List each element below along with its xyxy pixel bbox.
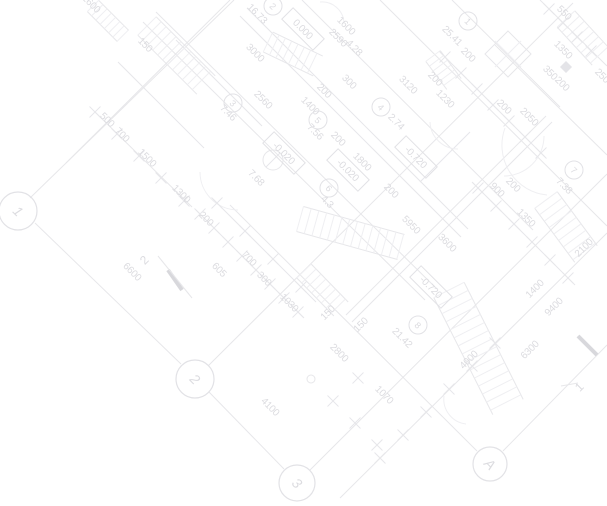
stair-tread <box>374 228 381 253</box>
stair-tread <box>554 217 576 234</box>
dimension-label: 200 <box>381 182 400 201</box>
dimension-label: 1300 <box>169 183 192 206</box>
wall-line <box>503 345 607 451</box>
dimension-label: 200 <box>458 46 477 65</box>
dimension-label: 2560 <box>251 89 274 112</box>
room-stamp: 7 <box>565 161 583 179</box>
stair-tread <box>358 224 365 249</box>
plan-symbols <box>263 31 572 383</box>
dimension-label: 300 <box>254 270 273 289</box>
stair-tread <box>450 314 480 329</box>
dimension-label: 7.56 <box>304 122 325 143</box>
grid-bubble-label: A <box>480 454 498 472</box>
room-stamp: 2 <box>264 0 282 15</box>
stair-tread <box>535 192 557 209</box>
dimension-label: 7.68 <box>245 168 266 189</box>
dimension-labels: 2600150300016.73160025904.2825607.465007… <box>79 0 607 419</box>
dimension-label: 16.73 <box>245 2 270 27</box>
dimension-label: 7.46 <box>217 103 238 124</box>
wall-line <box>118 62 204 148</box>
dimension-label: 1230 <box>433 88 456 111</box>
section-marker: 2 <box>137 253 192 298</box>
elevation-marker: 0.000 <box>282 8 324 50</box>
room-stamp: 8 <box>409 316 427 334</box>
stair-tread <box>389 232 396 257</box>
stair-tread <box>482 379 512 394</box>
grid-bubble-label: 1 <box>10 203 27 220</box>
dimension-label: 200 <box>425 70 444 89</box>
dimension-label: 6300 <box>519 338 542 361</box>
dimension-label: 1400 <box>524 277 547 300</box>
stair-tread <box>540 198 562 215</box>
room-stamp: 4 <box>372 98 390 116</box>
architectural-plan: Architectural floor plan blueprint (rota… <box>0 0 607 506</box>
door-arcs <box>200 2 547 424</box>
grid-bubble: 2 <box>176 360 214 398</box>
dimension-label: 4100 <box>258 396 281 419</box>
dimension-label: 3120 <box>396 74 419 97</box>
stair-edge <box>434 298 493 415</box>
stair-tread <box>549 211 571 228</box>
stair-tread <box>544 205 566 222</box>
stair-tread <box>586 42 604 58</box>
grid-bubble: 3 <box>279 465 315 501</box>
wall-line <box>156 12 437 289</box>
grid-bubbles: 123A <box>0 192 507 501</box>
wall-line <box>30 0 234 198</box>
dimension-label: 700 <box>239 250 258 269</box>
dimension-label: 1500 <box>135 147 158 170</box>
stair-tread <box>307 53 317 73</box>
dimension-label: 550 <box>554 4 573 23</box>
dimension-label: 300 <box>339 73 358 92</box>
dimension-label: 150 <box>319 303 338 322</box>
stair-tread <box>491 395 521 410</box>
dimension-label: 9400 <box>543 295 566 318</box>
dimension-label: 2800 <box>327 342 350 365</box>
stair-tread <box>487 387 517 402</box>
dimension-label: 2.74 <box>385 112 406 133</box>
dimension-label: 250 <box>592 67 607 86</box>
stair-tread <box>297 206 304 231</box>
section-tail-line <box>158 256 192 298</box>
point-marker <box>307 375 315 383</box>
dimension-label: 3000 <box>243 42 266 65</box>
stair-tread <box>350 221 357 246</box>
stair-tread <box>288 44 298 64</box>
room-number: 6 <box>323 183 334 194</box>
wall-line <box>310 174 607 470</box>
room-number: 8 <box>412 320 423 331</box>
stair-tread <box>474 363 504 378</box>
duct-symbol <box>560 61 572 73</box>
section-label: 1 <box>572 380 587 395</box>
dimension-label: 200 <box>503 176 522 195</box>
stair-tread <box>304 209 311 234</box>
stair-tread <box>327 215 334 240</box>
wall-and-grid-lines <box>30 0 607 498</box>
room-number: 1 <box>462 16 473 27</box>
dimension-label: 25.41 <box>440 24 465 49</box>
room-stamp: 6 <box>320 179 338 197</box>
dimension-label: 6600 <box>120 261 143 284</box>
dimension-label: 500 <box>97 111 116 130</box>
stair-tread <box>559 224 581 241</box>
stair-tread <box>478 371 508 386</box>
dimension-label: 1350 <box>514 207 537 230</box>
grid-bubble-label: 3 <box>289 475 306 492</box>
stair-tread <box>442 298 472 313</box>
dimension-label: 2600 <box>79 0 102 16</box>
section-marker: 1 <box>561 336 597 394</box>
dimension-label: 150 <box>352 315 371 334</box>
stair-tread <box>192 71 210 89</box>
dimension-label: 700 <box>112 126 131 145</box>
stair-edge <box>311 264 348 302</box>
dimension-label: 200 <box>314 82 333 101</box>
dimension-label: 150 <box>135 36 154 55</box>
room-stamp: 1 <box>459 12 477 30</box>
wall-line <box>35 223 181 364</box>
dimension-label: 3600 <box>435 232 458 255</box>
grid-bubble-label: 2 <box>186 370 204 388</box>
grid-bubble: 1 <box>0 192 37 230</box>
section-cut-line <box>578 336 597 355</box>
wall-line <box>247 8 468 229</box>
elevation-value: 0.000 <box>290 17 315 42</box>
stair-tread <box>320 213 327 238</box>
room-number: 4 <box>375 102 386 113</box>
stair-edge <box>535 208 575 262</box>
stair-tread <box>381 230 388 255</box>
dimension-label: 605 <box>209 261 228 280</box>
section-label: 2 <box>137 253 152 268</box>
stair-tread <box>335 217 342 242</box>
dimension-label: 200 <box>328 130 347 149</box>
stair-tread <box>454 323 484 338</box>
stair-tread <box>312 211 319 236</box>
dimension-label: 2050 <box>517 106 540 129</box>
stair-tread <box>270 35 280 55</box>
stair-tread <box>263 32 273 52</box>
room-number: 2 <box>267 1 278 12</box>
stair-edge <box>464 282 523 399</box>
stair-tread <box>581 37 599 53</box>
room-number: 7 <box>568 165 579 176</box>
grid-bubble: A <box>473 447 507 481</box>
door-arc <box>444 396 466 424</box>
door-arc <box>430 122 458 149</box>
blueprint-page: Architectural floor plan blueprint (rota… <box>0 0 607 506</box>
wall-line <box>472 182 575 285</box>
stair-tread <box>458 331 488 346</box>
section-cut-line <box>168 270 182 290</box>
dimension-label: 1400 <box>298 95 321 118</box>
stair-tread <box>576 31 594 47</box>
wall-line <box>495 45 607 155</box>
